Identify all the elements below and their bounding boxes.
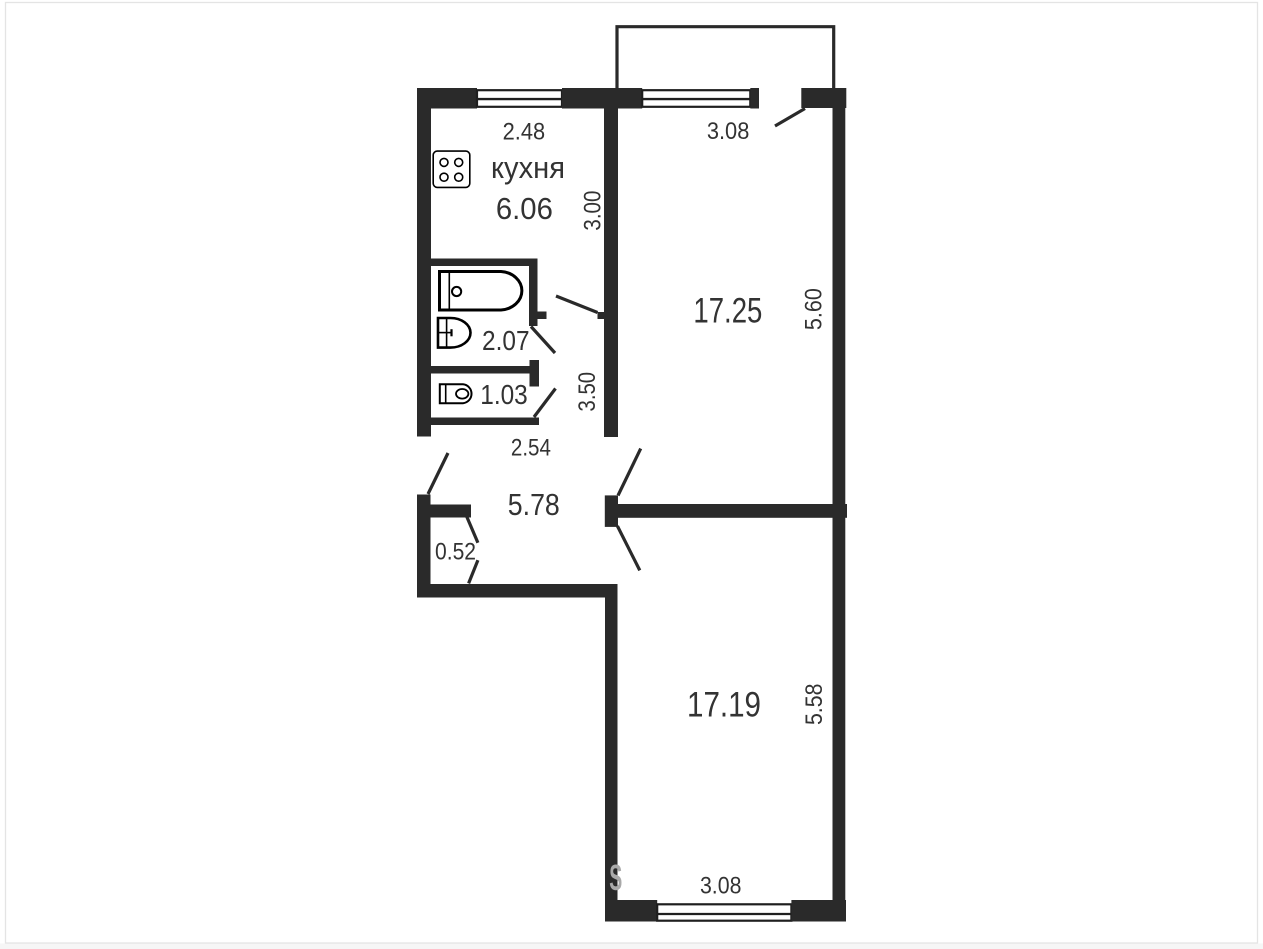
svg-text:S: S [609,857,622,898]
svg-text:5.78: 5.78 [508,487,560,522]
svg-text:3.08: 3.08 [707,118,750,145]
svg-text:2.54: 2.54 [511,434,551,461]
svg-text:17.19: 17.19 [687,686,761,725]
svg-text:17.25: 17.25 [693,292,762,331]
svg-text:6.06: 6.06 [496,191,553,226]
svg-text:1.03: 1.03 [480,379,528,410]
svg-text:3.00: 3.00 [580,191,607,231]
svg-text:кухня: кухня [491,150,565,185]
svg-text:2.48: 2.48 [503,119,546,146]
svg-text:0.52: 0.52 [435,539,476,566]
svg-text:5.58: 5.58 [801,684,828,726]
svg-text:3.08: 3.08 [700,873,742,900]
svg-text:3.50: 3.50 [574,372,601,412]
svg-text:2.07: 2.07 [482,325,530,356]
svg-text:5.60: 5.60 [801,288,828,330]
